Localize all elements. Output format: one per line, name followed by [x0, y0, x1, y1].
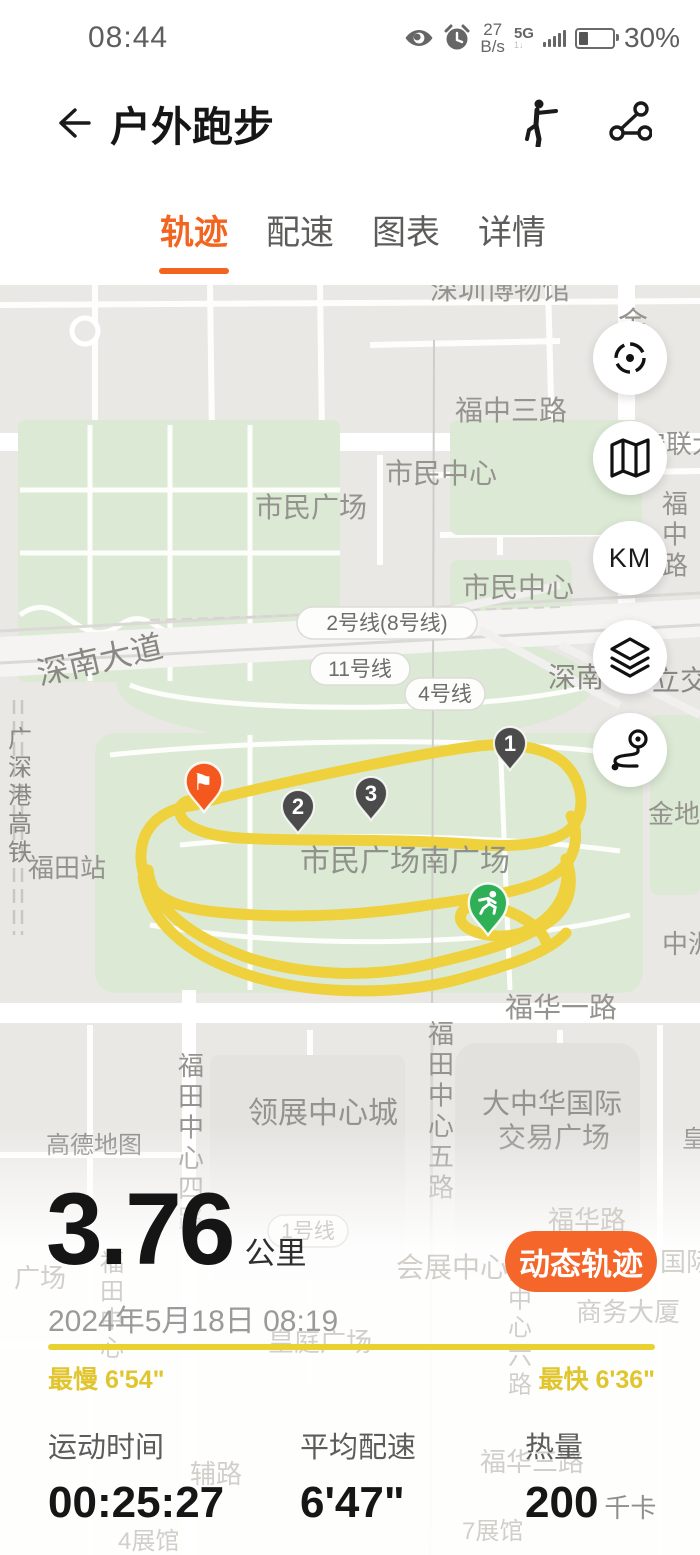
map-label: 会展中心 — [396, 1252, 508, 1283]
share-route-icon[interactable] — [604, 100, 652, 146]
transit-badge-label: 4号线 — [418, 683, 472, 706]
map-label: 金地 — [648, 799, 700, 829]
signal-bars-icon — [543, 29, 566, 47]
stat-热量: 热量200千卡 — [525, 1424, 656, 1528]
svg-text:⚑: ⚑ — [193, 769, 214, 795]
slowest-pace: 最慢 6'54" — [48, 1360, 164, 1396]
map-label: 市民中心 — [385, 458, 497, 489]
fastest-pace: 最快 6'36" — [539, 1360, 655, 1396]
alarm-icon — [443, 24, 471, 52]
back-button[interactable] — [50, 101, 94, 145]
svg-text:2: 2 — [292, 794, 304, 819]
status-bar: 08:44 27 B/s 5G 1↓ 30% — [0, 0, 700, 76]
map-label: 市民广场 — [255, 492, 367, 523]
stats-row: 运动时间00:25:27平均配速6'47"热量200千卡 — [48, 1424, 658, 1528]
distance-unit: 公里 — [245, 1228, 307, 1273]
distance-summary: 3.76 公里 — [46, 1176, 307, 1283]
layers-button[interactable] — [593, 620, 667, 694]
header: 户外跑步 — [0, 88, 700, 158]
tab-配速[interactable]: 配速 — [266, 205, 334, 268]
map-label: 福田站 — [28, 853, 106, 883]
stat-unit: 千卡 — [604, 1493, 656, 1523]
warm-up-runner-icon[interactable] — [522, 99, 560, 147]
network-speed: 27 B/s — [480, 21, 505, 55]
distance-value: 3.76 — [46, 1176, 233, 1283]
stat-label: 热量 — [525, 1424, 656, 1466]
route-detail-button[interactable] — [593, 713, 667, 787]
stat-value: 200千卡 — [525, 1478, 656, 1528]
stat-运动时间: 运动时间00:25:27 — [48, 1424, 300, 1528]
pace-range-labels: 最慢 6'54" 最快 6'36" — [48, 1360, 655, 1396]
map-label: 国际 — [660, 1247, 700, 1277]
map-label: 深圳博物馆 — [430, 285, 570, 305]
stat-label: 平均配速 — [300, 1424, 525, 1466]
stat-label: 运动时间 — [48, 1424, 300, 1466]
km-marker-toggle[interactable]: KM — [593, 521, 667, 595]
page-title: 户外跑步 — [110, 93, 274, 153]
locate-button[interactable] — [593, 321, 667, 395]
tab-轨迹[interactable]: 轨迹 — [160, 205, 228, 268]
eye-protection-icon — [404, 27, 434, 49]
map-label: 广深港高铁 — [8, 726, 32, 866]
tab-图表[interactable]: 图表 — [372, 205, 440, 268]
map-label: 市民中心 — [462, 572, 574, 603]
map-label: 福中三路 — [455, 395, 567, 426]
tab-bar: 轨迹配速图表详情 — [160, 205, 546, 268]
stat-平均配速: 平均配速6'47" — [300, 1424, 525, 1528]
battery-percent: 30% — [624, 22, 680, 54]
map-label: 福华一路 — [505, 992, 617, 1023]
map-roundabout — [72, 318, 98, 344]
network-type: 5G 1↓ — [514, 26, 534, 50]
status-time: 08:44 — [88, 21, 168, 55]
battery-icon — [575, 28, 615, 49]
map-label: 市民广场南广场 — [300, 845, 510, 878]
svg-text:1: 1 — [504, 731, 516, 756]
transit-badge-label: 11号线 — [328, 658, 392, 681]
transit-badge-label: 2号线(8号线) — [326, 612, 447, 635]
map-mode-button[interactable] — [593, 421, 667, 495]
stat-value: 00:25:27 — [48, 1478, 300, 1528]
tab-详情[interactable]: 详情 — [478, 205, 546, 268]
map-label: 4展馆 — [118, 1528, 179, 1555]
map-label: 大中华国际 — [482, 1088, 622, 1119]
map-label: 中洲 — [662, 929, 700, 959]
svg-text:3: 3 — [365, 781, 377, 806]
map-label: 商务大厦 — [576, 1297, 680, 1327]
stat-value: 6'47" — [300, 1478, 525, 1528]
pace-range-bar[interactable] — [48, 1344, 655, 1350]
dynamic-track-button[interactable]: 动态轨迹 — [505, 1231, 657, 1292]
activity-datetime: 2024年5月18日 08:19 — [48, 1296, 338, 1340]
